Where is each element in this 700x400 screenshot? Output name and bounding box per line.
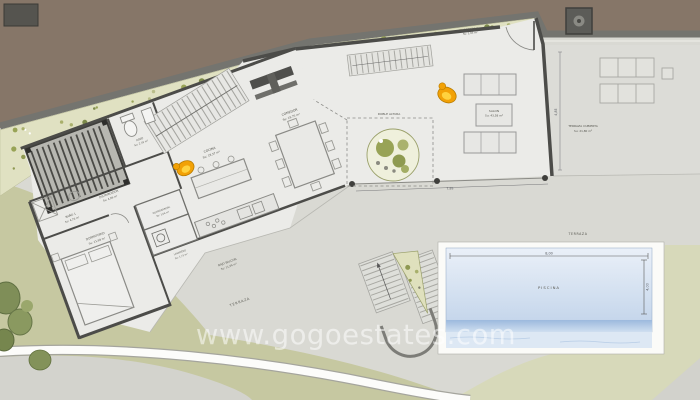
pool-width-dim: 8,00 — [545, 252, 553, 256]
interior-planter — [367, 129, 419, 181]
sofa — [464, 132, 516, 153]
watermark: www.gogoestates.com — [196, 319, 516, 351]
label-salon-name: SALON — [489, 109, 499, 113]
vegetation-dot — [152, 90, 155, 93]
vegetation-dot — [13, 167, 15, 169]
vegetation-dot — [21, 155, 25, 159]
vegetation-dot — [96, 106, 98, 108]
pool-height-dim: 4,00 — [646, 283, 650, 291]
label-terraza-upper: TERRAZA — [567, 232, 587, 236]
label-salon-area: Su: 43,58 m² — [485, 114, 503, 118]
salon-width-dim: 7,85 — [446, 186, 453, 190]
label-terraza-cubierta-area: Su: 21,80 m² — [574, 129, 592, 133]
vegetation-dot — [93, 107, 96, 110]
label-piscina: PISCINA — [538, 285, 560, 290]
vegetation-dot — [60, 120, 63, 123]
corner-structure — [4, 4, 38, 26]
vegetation-dot — [13, 128, 18, 133]
vegetation-dot — [70, 123, 73, 126]
vegetation-dot — [131, 100, 133, 102]
floorplan-canvas: ASEO Su: 2,35 m² DISTRIBUIDOR Su: 4,96 m… — [0, 0, 700, 400]
salon-height-dim: 4,85 — [554, 108, 558, 115]
utility-box-icon — [566, 8, 592, 34]
vegetation-dot — [29, 132, 31, 134]
floorplan-drawing: ASEO Su: 2,35 m² DISTRIBUIDOR Su: 4,96 m… — [0, 0, 700, 400]
label-doble-altura: DOBLE ALTURA — [378, 112, 402, 116]
vegetation-dot — [22, 127, 25, 130]
sofa — [464, 74, 516, 95]
vegetation-dot — [11, 146, 16, 151]
label-terraza-cubierta-name: TERRAZA CUBIERTA — [567, 124, 598, 128]
